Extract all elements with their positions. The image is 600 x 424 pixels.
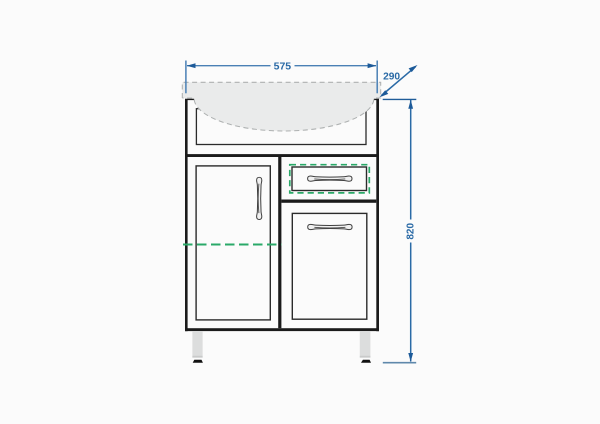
svg-text:575: 575 [274, 61, 292, 73]
svg-text:290: 290 [383, 72, 400, 83]
svg-text:820: 820 [405, 223, 416, 240]
